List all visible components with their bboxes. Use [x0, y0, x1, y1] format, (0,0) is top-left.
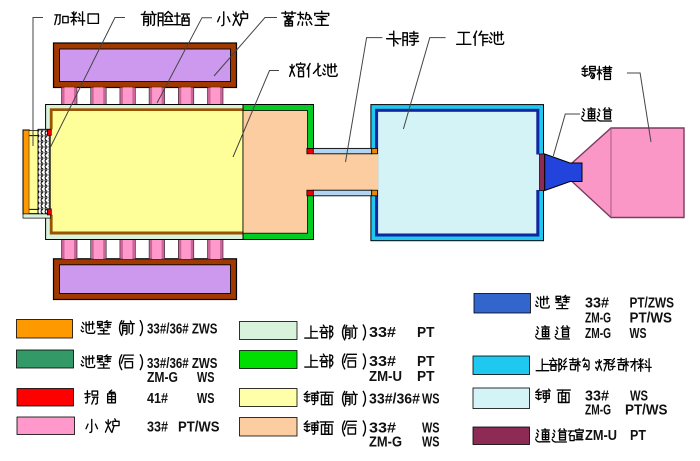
svg-text:ZM-U: ZM-U: [585, 428, 617, 444]
svg-text:ZM-U: ZM-U: [369, 369, 402, 385]
svg-text:ZM-G: ZM-G: [369, 435, 402, 451]
svg-text:PT/WS: PT/WS: [630, 311, 673, 327]
svg-text:ZM-G: ZM-G: [585, 326, 611, 342]
svg-text:41#: 41#: [147, 391, 168, 407]
svg-text:PT/ZWS: PT/ZWS: [630, 296, 675, 312]
svg-text:PT: PT: [417, 354, 435, 370]
svg-text:33#: 33#: [369, 325, 396, 341]
svg-text:33#: 33#: [147, 420, 168, 436]
svg-text:PT/WS: PT/WS: [625, 403, 668, 419]
svg-text:WS: WS: [630, 326, 647, 342]
svg-text:PT: PT: [630, 428, 646, 444]
svg-text:WS: WS: [197, 391, 215, 407]
svg-text:WS: WS: [422, 392, 440, 408]
svg-text:WS: WS: [422, 435, 440, 451]
svg-text:33#: 33#: [369, 354, 396, 370]
svg-text:ZM-G: ZM-G: [585, 403, 611, 419]
svg-text:WS: WS: [197, 370, 215, 386]
svg-text:33#/36#: 33#/36#: [369, 392, 420, 408]
svg-text:ZM-G: ZM-G: [585, 311, 611, 327]
svg-text:ZM-G: ZM-G: [147, 370, 178, 386]
svg-text:PT/WS: PT/WS: [178, 420, 220, 436]
svg-text:PT: PT: [417, 325, 435, 341]
svg-text:33#: 33#: [585, 296, 609, 312]
svg-text:PT: PT: [417, 369, 435, 385]
svg-text:33#/36# ZWS: 33#/36# ZWS: [147, 322, 218, 338]
